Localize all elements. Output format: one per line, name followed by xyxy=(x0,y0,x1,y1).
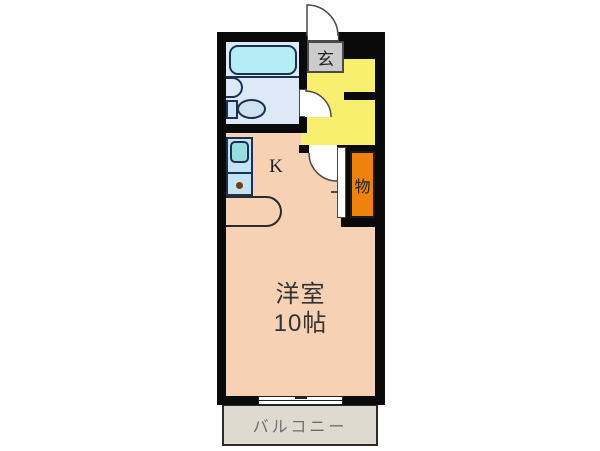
closet-box: 物 xyxy=(350,151,375,218)
sliding-window xyxy=(258,396,343,405)
bathtub xyxy=(229,45,297,75)
kitchen-label: K xyxy=(260,156,292,178)
kitchen-door-handle xyxy=(331,191,337,193)
window-center-stile xyxy=(295,397,307,399)
kitchen-door-opening xyxy=(309,145,337,153)
wall-block-top-right xyxy=(344,32,375,59)
bathroom-door-leaf xyxy=(299,89,307,117)
kitchen-unit-divider xyxy=(226,172,253,174)
wall-closet-bottom xyxy=(341,218,385,227)
balcony-label: バルコニー xyxy=(253,413,348,437)
stove-burner xyxy=(236,182,243,189)
main-room-label: 洋室 10帖 xyxy=(226,280,375,338)
toilet-bowl xyxy=(237,99,266,119)
wall-bathroom-bottom xyxy=(217,124,307,133)
wall-left xyxy=(217,32,226,405)
entrance-door-leaf xyxy=(307,32,339,41)
wall-notch xyxy=(344,92,375,100)
kitchen-door-leaf xyxy=(337,147,346,218)
genkan-box: 玄 xyxy=(307,41,344,73)
main-room-name: 洋室 xyxy=(226,280,375,309)
floor-plan: バルコニー 玄 物 xyxy=(0,0,600,451)
closet-label: 物 xyxy=(354,173,370,197)
kitchen-sink xyxy=(230,141,249,163)
genkan-label: 玄 xyxy=(317,45,334,70)
main-room-size: 10帖 xyxy=(226,309,375,338)
kitchen-counter-outline xyxy=(226,196,282,227)
window-midline xyxy=(259,400,342,401)
balcony-area: バルコニー xyxy=(222,404,378,446)
